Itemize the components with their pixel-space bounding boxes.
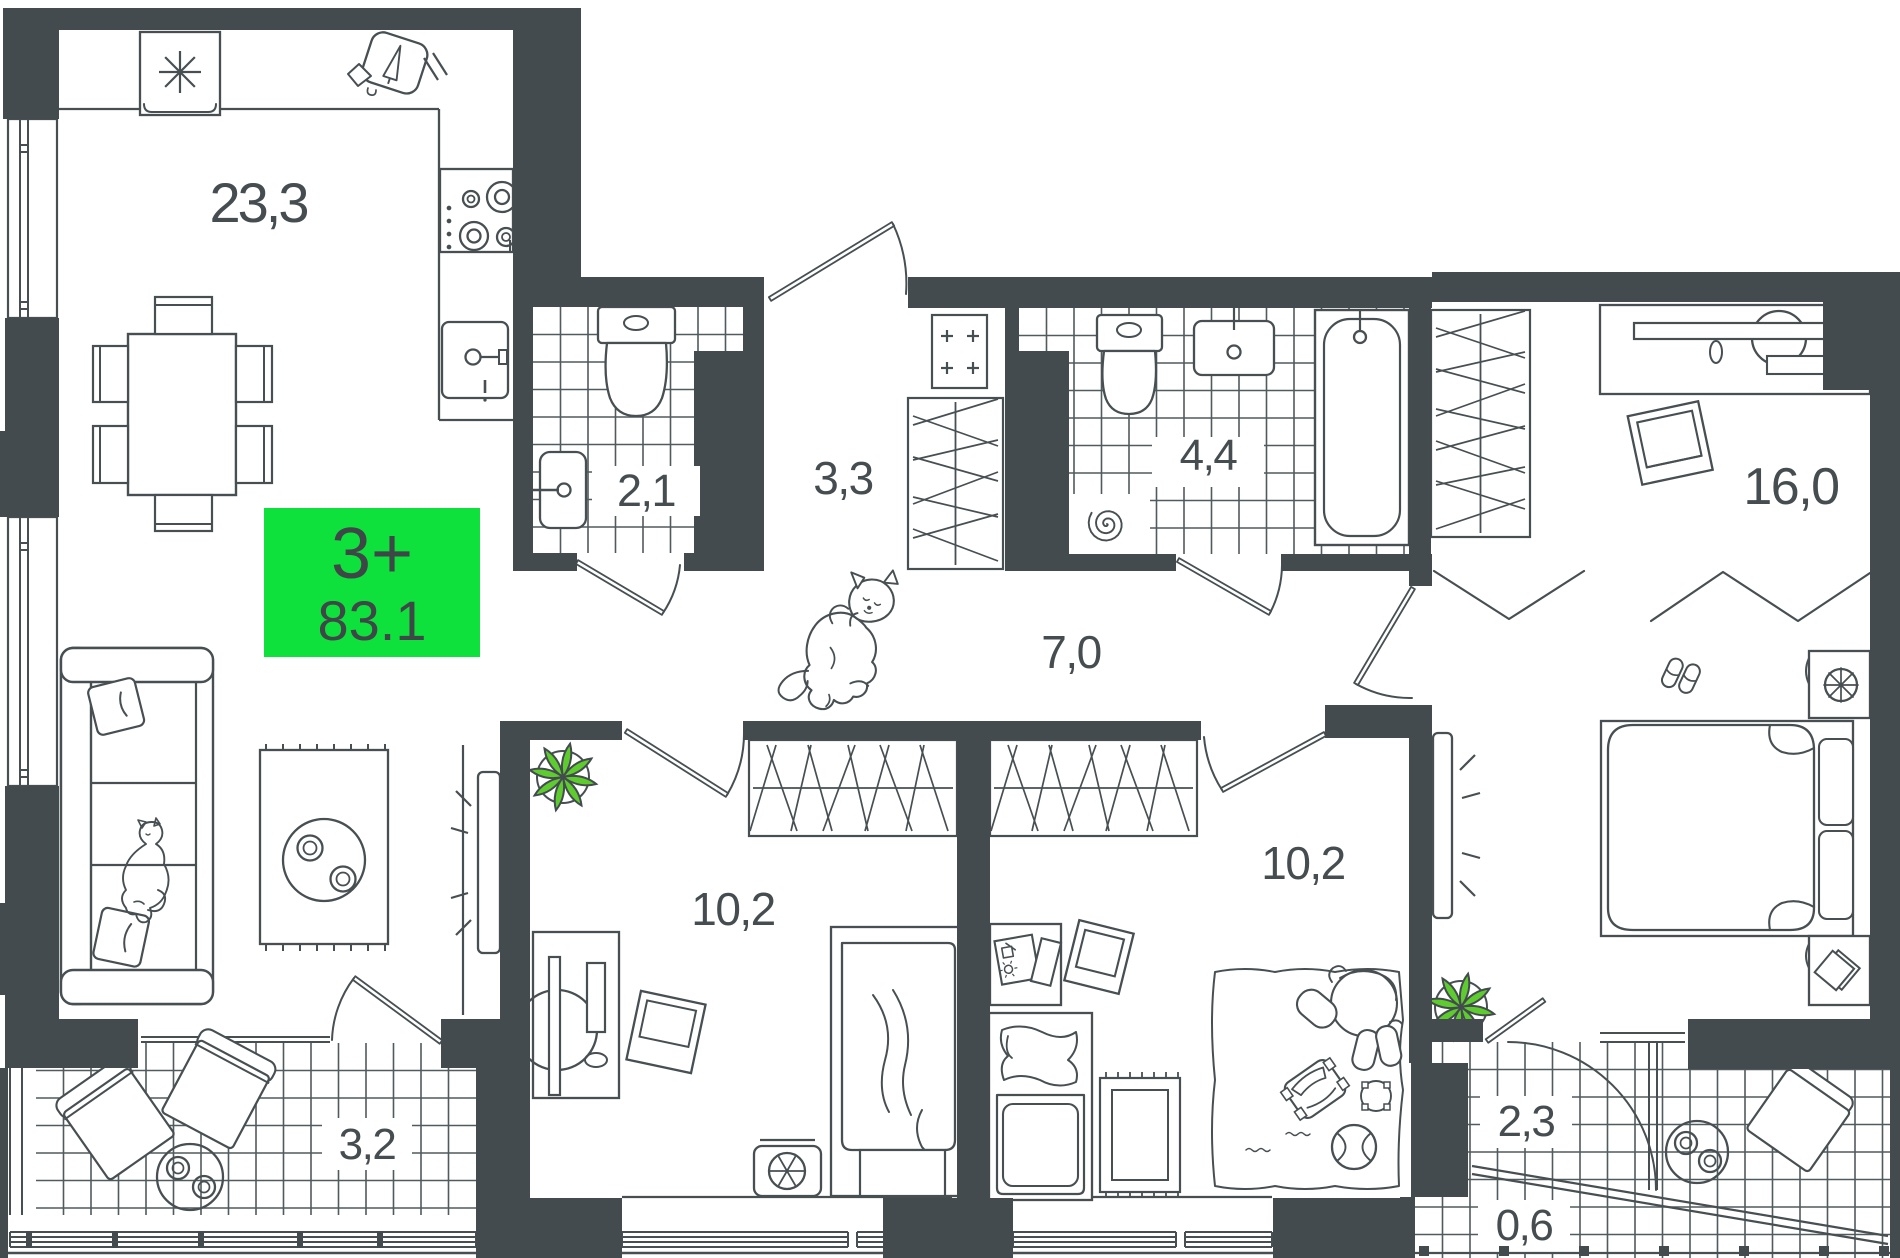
svg-text:16,0: 16,0 [1743, 458, 1838, 516]
svg-text:3,3: 3,3 [813, 452, 872, 504]
svg-text:10,2: 10,2 [691, 883, 775, 935]
svg-text:2,1: 2,1 [617, 465, 675, 516]
svg-text:4,4: 4,4 [1180, 431, 1238, 480]
svg-text:3,2: 3,2 [339, 1120, 396, 1169]
svg-text:3+: 3+ [331, 514, 413, 594]
svg-text:7,0: 7,0 [1041, 626, 1100, 678]
svg-text:0,6: 0,6 [1496, 1201, 1553, 1250]
svg-text:23,3: 23,3 [210, 171, 308, 234]
svg-text:10,2: 10,2 [1261, 837, 1345, 889]
svg-text:83.1: 83.1 [318, 589, 427, 652]
svg-text:2,3: 2,3 [1498, 1097, 1555, 1146]
